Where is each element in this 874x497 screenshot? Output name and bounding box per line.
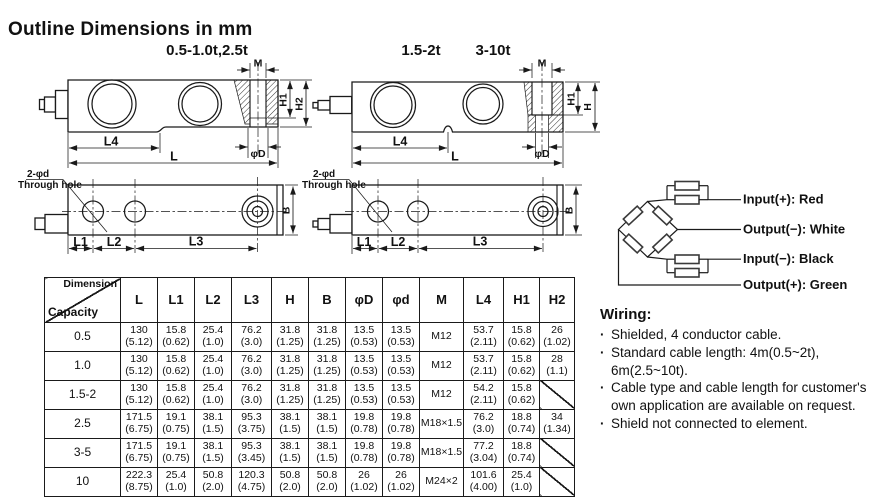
wiring-note: ·Shielded, 4 conductor cable.: [600, 326, 872, 344]
bullet-marker: ·: [600, 344, 611, 380]
table-cell: 18.8 (0.74): [504, 409, 540, 438]
column-header: L3: [232, 278, 272, 323]
dim-label-l4: L4: [104, 135, 119, 149]
dim-label-l4: L4: [393, 135, 408, 149]
dim-label-h: H: [582, 103, 594, 111]
top-view-large-capacity: 2-φd Through hole B L1 L2 L3: [302, 169, 582, 254]
table-cell: 38.1 (1.5): [272, 409, 309, 438]
strain-gauge-resistors: [623, 206, 672, 253]
cable-connector: [40, 91, 69, 119]
table-cell: 130 (5.12): [121, 380, 158, 409]
wire-label-input-minus: Input(−): Black: [743, 251, 834, 266]
wiring-note-text: Cable type and cable length for customer…: [611, 379, 872, 415]
column-header: H2: [540, 278, 575, 323]
table-cell: 54.2 (2.11): [464, 380, 504, 409]
wiring-note-text: Standard cable length: 4m(0.5~2t), 6m(2.…: [611, 344, 872, 380]
table-cell: 25.4 (1.0): [195, 322, 232, 351]
corner-label-dimension: Dimension: [63, 279, 117, 291]
dim-label-phi-d: φD: [534, 148, 550, 160]
wiring-notes-list: ·Shielded, 4 conductor cable.·Standard c…: [600, 326, 872, 433]
bullet-marker: ·: [600, 415, 611, 433]
table-cell: 38.1 (1.5): [195, 409, 232, 438]
datasheet-page: { "title": "Outline Dimensions in mm", "…: [0, 0, 874, 479]
compensation-resistor-pair-bottom: [648, 255, 742, 277]
table-cell: 95.3 (3.45): [232, 438, 272, 467]
table-cell: M18×1.5: [420, 409, 464, 438]
technical-drawings: 0.5-1.0t,2.5t M: [0, 0, 874, 300]
table-row: 2.5171.5 (6.75)19.1 (0.75)38.1 (1.5)95.3…: [45, 409, 575, 438]
wiring-note-text: Shield not connected to element.: [611, 415, 808, 433]
dim-label-l2: L2: [391, 235, 406, 249]
table-cell: 26 (1.02): [540, 322, 575, 351]
table-cell: 28 (1.1): [540, 351, 575, 380]
column-header: L: [121, 278, 158, 323]
dim-label-l: L: [170, 150, 178, 164]
capacity-cell: 10: [45, 467, 121, 496]
bridge-diamond: [619, 202, 678, 258]
dim-label-l1: L1: [357, 235, 372, 249]
dimension-l1-l2-l3: L1 L2 L3: [352, 235, 542, 255]
column-header: φd: [383, 278, 420, 323]
table-cell: M12: [420, 351, 464, 380]
table-cell: 13.5 (0.53): [383, 380, 420, 409]
bullet-marker: ·: [600, 379, 611, 415]
table-cell: 38.1 (1.5): [195, 438, 232, 467]
table-cell: 13.5 (0.53): [346, 351, 383, 380]
dim-label-h2: H2: [294, 97, 306, 111]
table-cell: 31.8 (1.25): [272, 380, 309, 409]
wheatstone-bridge-diagram: Input(+): Red Output(−): White Input(−):…: [619, 182, 848, 293]
table-cell: 19.8 (0.78): [346, 438, 383, 467]
table-cell: 31.8 (1.25): [272, 351, 309, 380]
dim-label-l1: L1: [73, 235, 88, 249]
table-cell: 19.1 (0.75): [158, 438, 195, 467]
table-cell: 25.4 (1.0): [195, 380, 232, 409]
loadcell-body-top: [68, 185, 283, 235]
column-header: H: [272, 278, 309, 323]
column-header: L1: [158, 278, 195, 323]
dim-label-b: B: [281, 206, 293, 214]
table-cell: 171.5 (6.75): [121, 438, 158, 467]
dim-label-m: M: [254, 58, 263, 70]
cable-connector: [313, 97, 352, 114]
table-cell: 171.5 (6.75): [121, 409, 158, 438]
column-header: B: [309, 278, 346, 323]
table-cell: 19.8 (0.78): [346, 409, 383, 438]
dim-label-h1: H1: [278, 93, 290, 107]
table-cell: 26 (1.02): [383, 467, 420, 496]
table-cell: 31.8 (1.25): [272, 322, 309, 351]
dimension-table: Dimension Capacity LL1L2L3HBφDφdML4H1H2 …: [44, 277, 575, 497]
dim-label-l: L: [451, 150, 459, 164]
table-cell: 50.8 (2.0): [309, 467, 346, 496]
table-cell: 53.7 (2.11): [464, 351, 504, 380]
table-cell: [540, 380, 575, 409]
capacity-range-label: 3-10t: [475, 42, 510, 59]
table-cell: 31.8 (1.25): [309, 322, 346, 351]
dimension-table-body: 0.5130 (5.12)15.8 (0.62)25.4 (1.0)76.2 (…: [45, 322, 575, 496]
table-cell: M12: [420, 380, 464, 409]
top-view-small-capacity: 2-φd Through hole B L1 L2 L3: [18, 169, 298, 254]
cable-connector: [35, 215, 68, 234]
wire-label-input-plus: Input(+): Red: [743, 192, 824, 207]
corner-label-capacity: Capacity: [48, 306, 98, 319]
wire-label-output-minus: Output(−): White: [743, 222, 845, 237]
table-row: 3-5171.5 (6.75)19.1 (0.75)38.1 (1.5)95.3…: [45, 438, 575, 467]
table-cell: 101.6 (4.00): [464, 467, 504, 496]
table-cell: 76.2 (3.0): [232, 380, 272, 409]
table-cell: 31.8 (1.25): [309, 351, 346, 380]
table-cell: 50.8 (2.0): [272, 467, 309, 496]
dim-label-l3: L3: [189, 235, 204, 249]
dimension-l4-l: L4 L: [352, 132, 563, 168]
dim-label-m: M: [538, 58, 547, 70]
table-cell: 130 (5.12): [121, 351, 158, 380]
table-cell: M18×1.5: [420, 438, 464, 467]
loadcell-body-top: [352, 185, 563, 235]
table-cell: 34 (1.34): [540, 409, 575, 438]
table-cell: 19.8 (0.78): [383, 438, 420, 467]
table-cell: 38.1 (1.5): [272, 438, 309, 467]
capacity-cell: 1.5-2: [45, 380, 121, 409]
table-cell: 13.5 (0.53): [383, 322, 420, 351]
capacity-cell: 3-5: [45, 438, 121, 467]
dimension-b: B: [564, 185, 583, 235]
table-cell: 31.8 (1.25): [309, 380, 346, 409]
table-cell: 76.2 (3.0): [464, 409, 504, 438]
capacity-range-label: 0.5-1.0t,2.5t: [166, 42, 248, 59]
table-cell: 15.8 (0.62): [504, 380, 540, 409]
side-view-large-capacity: 1.5-2t 3-10t M: [313, 42, 600, 168]
wiring-title: Wiring:: [600, 306, 872, 323]
table-cell: 15.8 (0.62): [504, 322, 540, 351]
side-view-small-capacity: 0.5-1.0t,2.5t M: [40, 42, 313, 168]
table-cell: 25.4 (1.0): [504, 467, 540, 496]
dimension-l1-l2-l3: L1 L2 L3: [68, 235, 257, 255]
compensation-resistor-pair-top: [648, 182, 742, 205]
table-row: 10222.3 (8.75)25.4 (1.0)50.8 (2.0)120.3 …: [45, 467, 575, 496]
table-cell: 53.7 (2.11): [464, 322, 504, 351]
table-cell: 95.3 (3.75): [232, 409, 272, 438]
bullet-marker: ·: [600, 326, 611, 344]
capacity-cell: 1.0: [45, 351, 121, 380]
table-cell: 15.8 (0.62): [158, 322, 195, 351]
capacity-cell: 2.5: [45, 409, 121, 438]
wire-label-output-plus: Output(+): Green: [743, 277, 847, 292]
table-cell: 25.4 (1.0): [195, 351, 232, 380]
table-cell: 76.2 (3.0): [232, 322, 272, 351]
column-header: L4: [464, 278, 504, 323]
table-cell: 13.5 (0.53): [346, 380, 383, 409]
dim-label-l3: L3: [473, 235, 488, 249]
table-cell: 130 (5.12): [121, 322, 158, 351]
table-row: 1.0130 (5.12)15.8 (0.62)25.4 (1.0)76.2 (…: [45, 351, 575, 380]
table-cell: 76.2 (3.0): [232, 351, 272, 380]
table-cell: M24×2: [420, 467, 464, 496]
table-cell: M12: [420, 322, 464, 351]
capacity-range-label: 1.5-2t: [401, 42, 440, 59]
table-cell: 50.8 (2.0): [195, 467, 232, 496]
table-cell: 15.8 (0.62): [504, 351, 540, 380]
callout-line1: 2-φd: [27, 169, 49, 180]
table-cell: [540, 438, 575, 467]
wiring-note-text: Shielded, 4 conductor cable.: [611, 326, 781, 344]
table-row: 0.5130 (5.12)15.8 (0.62)25.4 (1.0)76.2 (…: [45, 322, 575, 351]
table-cell: 18.8 (0.74): [504, 438, 540, 467]
wiring-note: ·Standard cable length: 4m(0.5~2t), 6m(2…: [600, 344, 872, 380]
table-cell: 13.5 (0.53): [346, 322, 383, 351]
table-cell: 38.1 (1.5): [309, 438, 346, 467]
dim-label-b: B: [564, 206, 576, 214]
table-cell: 38.1 (1.5): [309, 409, 346, 438]
dim-label-phi-d: φD: [250, 148, 266, 160]
dim-label-h1: H1: [566, 92, 578, 106]
table-cell: 25.4 (1.0): [158, 467, 195, 496]
dim-label-l2: L2: [107, 235, 122, 249]
table-cell: 222.3 (8.75): [121, 467, 158, 496]
table-cell: 19.1 (0.75): [158, 409, 195, 438]
table-cell: [540, 467, 575, 496]
table-cell: 15.8 (0.62): [158, 380, 195, 409]
table-cell: 19.8 (0.78): [383, 409, 420, 438]
table-cell: 120.3 (4.75): [232, 467, 272, 496]
callout-line1: 2-φd: [313, 169, 335, 180]
capacity-cell: 0.5: [45, 322, 121, 351]
table-cell: 13.5 (0.53): [383, 351, 420, 380]
table-corner-cell: Dimension Capacity: [45, 278, 121, 323]
dimension-l4-l: L4 L: [68, 128, 278, 168]
table-row: 1.5-2130 (5.12)15.8 (0.62)25.4 (1.0)76.2…: [45, 380, 575, 409]
cable-connector: [313, 215, 352, 234]
wiring-note: ·Shield not connected to element.: [600, 415, 872, 433]
table-cell: 77.2 (3.04): [464, 438, 504, 467]
wiring-note: ·Cable type and cable length for custome…: [600, 379, 872, 415]
table-header-row: Dimension Capacity LL1L2L3HBφDφdML4H1H2: [45, 278, 575, 323]
column-header: M: [420, 278, 464, 323]
column-header: H1: [504, 278, 540, 323]
column-header: L2: [195, 278, 232, 323]
column-header: φD: [346, 278, 383, 323]
table-cell: 15.8 (0.62): [158, 351, 195, 380]
table-cell: 26 (1.02): [346, 467, 383, 496]
callout-line2: Through hole: [18, 180, 82, 191]
wiring-notes: Wiring: ·Shielded, 4 conductor cable.·St…: [600, 306, 872, 433]
